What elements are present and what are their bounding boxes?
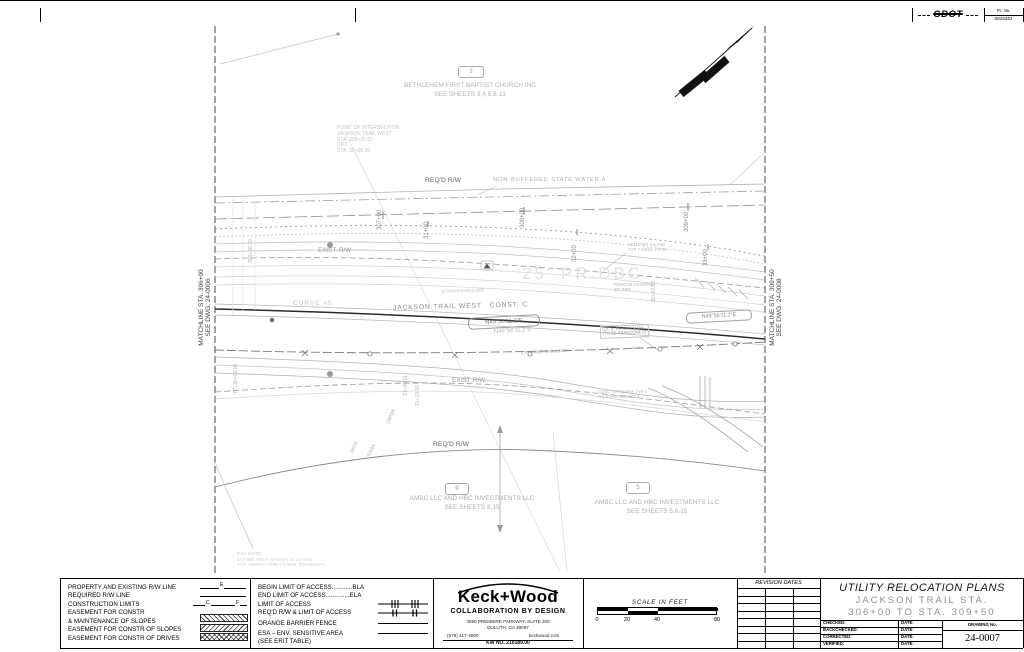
legend-item: ESA – ENV. SENSITIVE AREA [258,630,343,637]
drawing-no-label: DRAWING No. [942,623,1023,628]
label-splitter-island: SPLITTER ISLAND TYP 7 CONC FACE [628,243,666,253]
label-4440: -4440- [630,346,642,351]
esa-note: ESA NOTE: ENTIRE AREA SHOWN IS WITHIN TH… [237,552,326,569]
required-rw-line-symbol [200,596,246,597]
drives-easement-hatch [200,633,248,641]
pi-no-value: 0016351 [984,16,1023,21]
legend-item: & MAINTENANCE OF SLOPES [68,618,156,625]
north-arrow-icon [675,25,755,97]
label-remove-existing: REMOVE EXISTING 18" PIPE [614,283,654,293]
firm-name: Keck+Wood [433,587,583,607]
scale-title: SCALE IN FEET [583,599,737,606]
parcel-2-sheets: SEE SHEETS 3,4,5,8,13 [360,91,580,98]
legend-item: (SEE ERIT TABLE) [258,638,311,645]
parcel-5-sheets: SEE SHEETS 5,6,15 [567,508,747,515]
legend-item: PROPERTY AND EXISTING R/W LINE [68,584,176,591]
esa-line-symbol [378,633,428,634]
firm-phone: (678) 417-4000 [447,633,478,638]
label-curve: CURVE #5 [293,300,333,307]
parcel-9-sheets: SEE SHEETS 8,15 [382,504,562,511]
label-pc: PC 30+00.00 [234,364,240,393]
matchline-left-label: MATCHLINE STA. 306+00 SEE DWG. 24-0006 [198,250,213,365]
legend-item: REQ'D R/W & LIMIT OF ACCESS [258,609,351,616]
parcel-2-badge: 2 [458,66,484,78]
legend-item: END LIMIT OF ACCESS..............ELA [258,592,361,599]
legend-item: BEGIN LIMIT OF ACCESS............BLA [258,584,364,591]
orange-barrier-fence-symbol [378,623,428,624]
station-31: 31+00 [424,222,431,239]
legend-item: EASEMENT FOR CONSTR OF SLOPES [68,626,181,633]
poi-note: POINT OF INTERSECTION JACKSON TRAIL WEST… [337,126,399,155]
station-309: 309+00 [684,212,691,232]
label-pr-dbc: 25' PR DBC [522,264,643,284]
firm-tagline: COLLABORATION BY DESIGN [433,608,583,616]
legend-item: REQUIRED R/W LINE [68,592,130,599]
legend-item: EASEMENT FOR CONSTR [68,609,145,616]
firm-kw-number: KW NO. 210189.00 [433,641,583,647]
firm-address1: 3090 PREMIERE PARKWAY, SUITE 200 [433,619,583,624]
drawing-no-value: 24-0007 [942,633,1023,645]
legend-item: CONSTRUCTION LIMITS [68,601,140,608]
label-pc2: 31+05.61 [404,375,410,396]
legend-item: EASEMENT FOR CONSTR OF DRIVES [68,635,180,642]
label-pot: 306+38.30 [249,239,255,263]
label-reqd-rw-top: REQ'D R/W [425,177,461,185]
scale-bar-graphic [597,607,717,615]
firm-website: keckwood.com [529,633,559,638]
matchline-right-label: MATCHLINE STA. 309+50 SEE DWG. 24-0008 [769,250,784,365]
label-reqd-rw-bottom: REQ'D R/W [433,441,469,449]
pi-no-label: P.I. No. [984,9,1023,14]
parcel-2-name: BETHLEHEM FIRST BAPTIST CHURCH INC [360,82,580,89]
legend-item: LIMIT OF ACCESS [258,601,311,608]
parcel-9-badge: 9 [445,483,469,495]
label-exist-rw-bottom: EXIST. R/W [452,377,485,384]
revision-header: REVISION DATES [737,580,820,586]
slope-maint-easement-hatch [200,614,248,622]
gdot-logo: GDOT [912,8,984,22]
station-32: 32+00 [572,245,579,262]
sheet-title: UTILITY RELOCATION PLANS [822,582,1022,595]
label-exist-rw-top: EXIST. R/W [318,247,351,254]
legend-item: ORANGE BARRIER FENCE [258,620,337,627]
label-state-water: NON-BUFFERED STATE WATER A [493,177,606,184]
parcel-9-name: AMBC LLC AND HBC INVESTMENTS LLC [382,495,562,502]
parcel-5-badge: 5 [626,482,650,494]
station-33: 33+00 [703,249,710,266]
firm-address2: DULUTH, GA 30097 [433,625,583,630]
sheet-subtitle-2: 306+00 TO STA. 309+50 [822,608,1022,619]
sheet-subtitle-1: JACKSON TRAIL STA. [822,596,1022,607]
label-sta-3282: 32+82.53 [652,281,658,302]
plan-sheet: GDOT P.I. No. 0016351 MATCHLINE STA. 306… [0,0,1024,652]
station-308: 308+00 [520,208,527,228]
parcel-5-name: AMBC LLC AND HBC INVESTMENTS LLC [567,499,747,506]
slope-easement-hatch [200,624,248,632]
label-gas-main: EX. 4" PE GAS MAIN (TO BE ABANDONED) [600,324,649,339]
station-307: 307+00 [377,210,384,230]
reqd-rw-loa-symbol [378,608,428,618]
label-pc3: 31+19.50 [416,385,422,406]
label-driveway: CONC DRIVEWAY TYP 2 GA STANDARD 9013 [598,390,647,400]
